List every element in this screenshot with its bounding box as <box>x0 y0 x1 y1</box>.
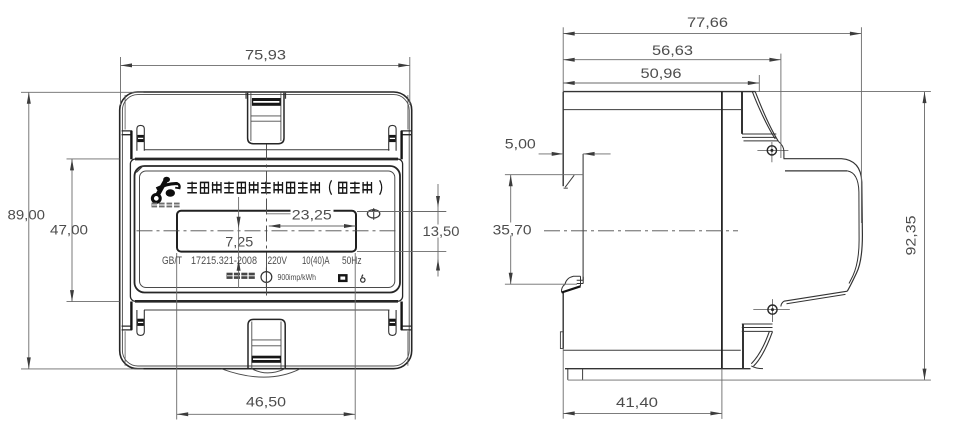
svg-text:23,25: 23,25 <box>292 207 332 223</box>
svg-text:220V: 220V <box>268 255 288 267</box>
svg-text:35,70: 35,70 <box>493 221 532 237</box>
svg-text:10(40)A: 10(40)A <box>302 255 330 267</box>
svg-text:92,35: 92,35 <box>903 215 919 255</box>
svg-text:89,00: 89,00 <box>8 207 46 223</box>
svg-text:13,50: 13,50 <box>423 223 460 239</box>
svg-text:17215.321-2008: 17215.321-2008 <box>191 255 257 267</box>
svg-text:GB/T: GB/T <box>162 255 182 267</box>
svg-text:75,93: 75,93 <box>245 47 286 63</box>
svg-text:41,40: 41,40 <box>616 394 658 410</box>
svg-text:50Hz: 50Hz <box>342 255 362 267</box>
svg-text:5,00: 5,00 <box>505 136 536 152</box>
svg-text:46,50: 46,50 <box>246 394 286 410</box>
svg-text:50,96: 50,96 <box>641 65 682 81</box>
svg-text:77,66: 77,66 <box>687 14 728 30</box>
svg-text:56,63: 56,63 <box>652 42 693 58</box>
svg-text:47,00: 47,00 <box>50 222 88 238</box>
svg-text:900imp/kWh: 900imp/kWh <box>278 272 317 282</box>
svg-text:7,25: 7,25 <box>225 234 253 250</box>
